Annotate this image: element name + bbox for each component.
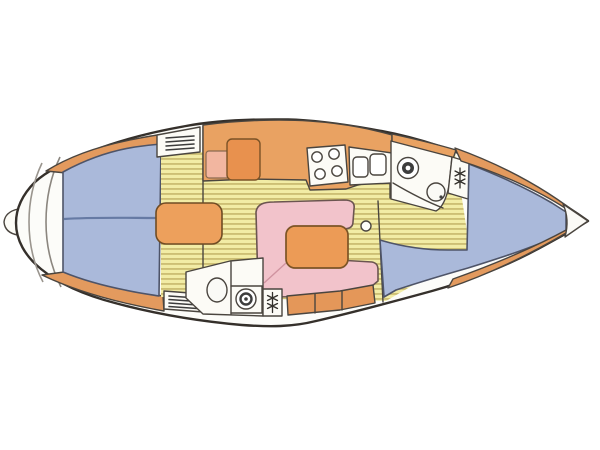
- saloon-table: [286, 226, 348, 268]
- burner-icon: [312, 152, 322, 162]
- burner-icon: [329, 149, 339, 159]
- stove: [307, 145, 348, 186]
- sink-bowl-icon: [353, 157, 368, 177]
- companionway-steps: [156, 203, 222, 244]
- washbasin-icon: [427, 183, 445, 201]
- burner-icon: [315, 169, 325, 179]
- faucet-dot: [439, 195, 442, 198]
- toilet-bowl-center: [244, 297, 248, 301]
- aft-berth: [63, 144, 161, 296]
- aft-hanging-locker: [263, 289, 282, 316]
- aft-berth-seam: [64, 218, 158, 219]
- boat-floor-plan-image: [0, 0, 600, 450]
- toilet-bowl-center: [406, 166, 411, 171]
- floor-plan-svg: [0, 0, 600, 450]
- cup-holder-icon: [361, 221, 371, 231]
- icebox: [227, 139, 260, 180]
- anchor-locker: [563, 204, 588, 237]
- washbasin-icon: [207, 278, 227, 302]
- galley-double-sink: [349, 147, 392, 185]
- burner-icon: [332, 166, 342, 176]
- sink-bowl-icon: [370, 154, 386, 175]
